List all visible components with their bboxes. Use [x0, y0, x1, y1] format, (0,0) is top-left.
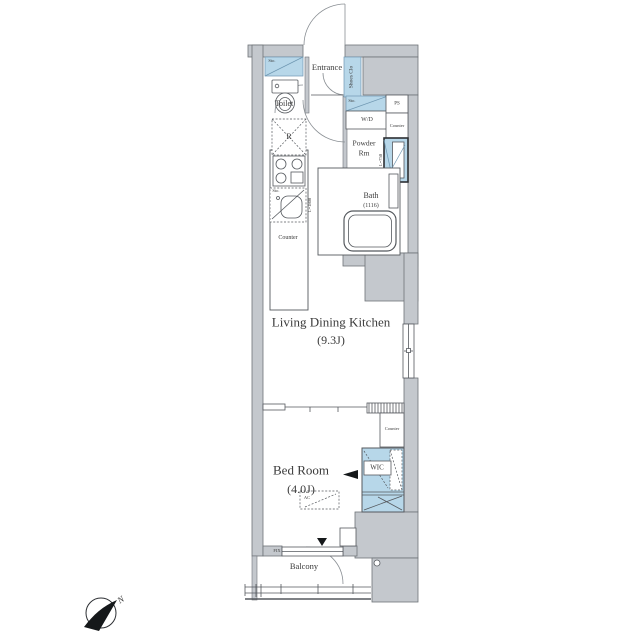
wall-pillar: [340, 528, 356, 546]
bathroom: [318, 168, 400, 255]
washer-dryer-label: W/D: [361, 117, 373, 123]
floor-plan-page: Toilet Entrance Shoes Clo Sto. Sto. W/D …: [0, 0, 640, 640]
door-pocket-hatch: [367, 403, 404, 413]
powder-room-label: Powder: [353, 139, 376, 147]
bedroom-window: [282, 538, 343, 556]
balcony-label: Balcony: [290, 562, 318, 571]
entrance-label: Entrance: [312, 63, 342, 72]
wic-closet: [362, 448, 404, 512]
compass: [84, 598, 117, 631]
drain-outlet: [374, 560, 380, 566]
shoes-closet-label: Shoes Clo: [349, 66, 355, 88]
wic-label: WIC: [370, 465, 384, 472]
vanity-length-label: L=750: [379, 154, 384, 166]
toilet-storage-label: Sto.: [268, 59, 275, 64]
ldk-size-label: (9.3J): [317, 334, 345, 346]
door-direction-marker: [343, 470, 358, 479]
toilet-label: Toilet: [275, 100, 294, 108]
kitchen-counter-label: Counter: [278, 235, 297, 241]
bath-size-label: (1116): [363, 203, 379, 209]
sink-storage-label: Sto.: [272, 189, 279, 194]
ldk-window: [403, 324, 414, 378]
opening-marker: [317, 538, 327, 546]
balcony-railing: [245, 584, 371, 599]
partition-sliding-door: [263, 403, 404, 413]
fix-window-label: FIX: [273, 549, 280, 554]
powder-counter-label: Counter: [390, 124, 405, 129]
kitchen-length-label: L=1800: [308, 198, 313, 212]
laundry-storage-label: Sto.: [348, 99, 355, 104]
stove: [273, 156, 305, 186]
kitchen: [270, 119, 308, 310]
ldk-label: Living Dining Kitchen: [272, 316, 390, 329]
pipe-space-label: PS: [394, 102, 400, 107]
refrigerator-label: R: [286, 133, 291, 141]
powder-room-label2: Rm: [359, 149, 370, 157]
bath-label: Bath: [363, 192, 378, 200]
ac-label: AC: [304, 496, 310, 501]
bedroom-counter-label: Counter: [385, 427, 400, 432]
bedroom-size-label: (4.0J): [287, 483, 315, 495]
bedroom-label: Bed Room: [273, 464, 329, 477]
